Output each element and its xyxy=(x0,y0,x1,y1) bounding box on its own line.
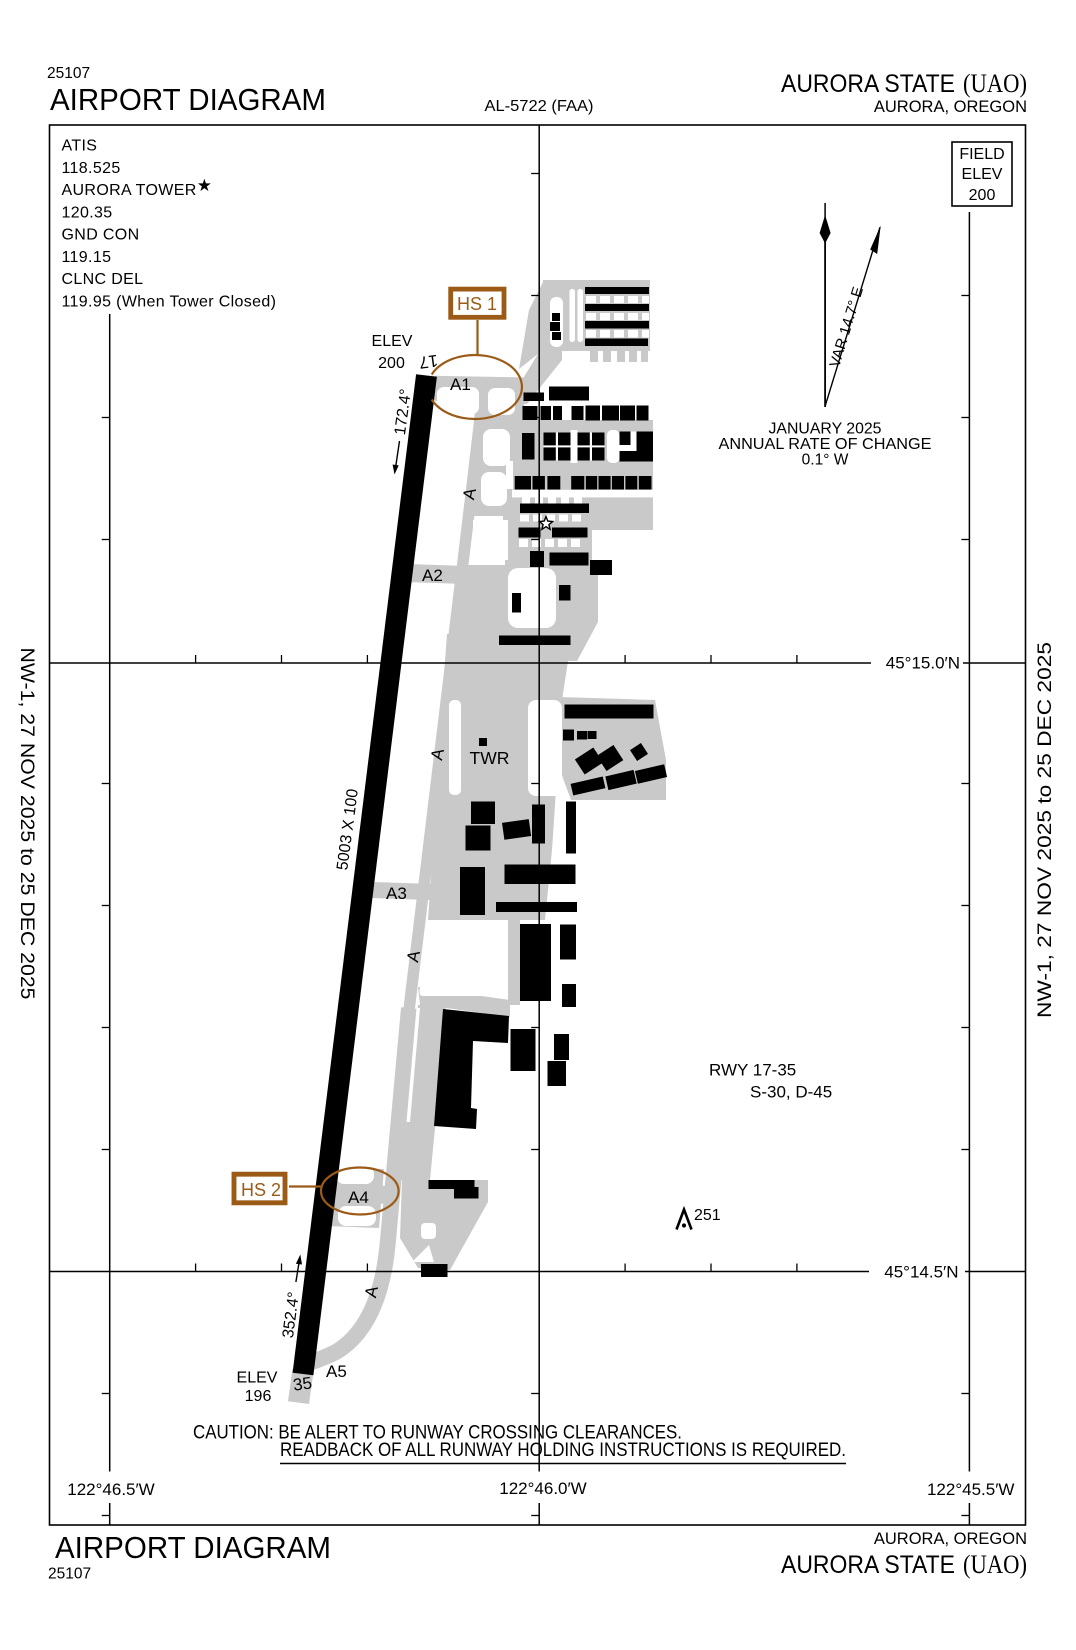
svg-text:25107: 25107 xyxy=(47,65,90,82)
svg-text:NW-1, 27 NOV 2025 to 25 DEC: NW-1, 27 NOV 2025 to 25 DEC 2025 xyxy=(1034,642,1056,1018)
svg-text:READBACK OF ALL RUNWAY HOLDING: READBACK OF ALL RUNWAY HOLDING INSTRUCTI… xyxy=(280,1439,846,1461)
svg-text:RWY 17-35: RWY 17-35 xyxy=(709,1061,796,1080)
svg-text:FIELD: FIELD xyxy=(959,146,1004,163)
svg-text:118.525: 118.525 xyxy=(62,160,121,177)
svg-text:ANNUAL RATE OF CHANGE: ANNUAL RATE OF CHANGE xyxy=(719,436,932,453)
svg-text:GND CON: GND CON xyxy=(62,227,140,244)
svg-text:122°45.5′W: 122°45.5′W xyxy=(927,1480,1014,1499)
svg-text:TWR: TWR xyxy=(470,748,510,768)
svg-text:(UAO): (UAO) xyxy=(963,1550,1027,1579)
svg-text:ATIS: ATIS xyxy=(62,138,98,155)
svg-text:200: 200 xyxy=(969,187,996,204)
svg-text:0.1° W: 0.1° W xyxy=(802,452,849,469)
svg-text:JANUARY 2025: JANUARY 2025 xyxy=(769,421,882,438)
svg-text:251: 251 xyxy=(694,1207,721,1224)
svg-text:AURORA STATE: AURORA STATE xyxy=(781,1551,955,1579)
svg-text:AL-5722 (FAA): AL-5722 (FAA) xyxy=(485,98,594,115)
svg-text:NW-1, 27 NOV 2025 to 25 DEC: NW-1, 27 NOV 2025 to 25 DEC 2025 xyxy=(16,648,38,1000)
svg-text:25107: 25107 xyxy=(48,1566,91,1583)
svg-text:AURORA STATE: AURORA STATE xyxy=(781,70,955,98)
svg-text:AIRPORT DIAGRAM: AIRPORT DIAGRAM xyxy=(50,82,326,117)
svg-text:A5: A5 xyxy=(326,1362,347,1381)
svg-text:119.95 (When Tower Closed): 119.95 (When Tower Closed) xyxy=(62,294,277,311)
svg-text:A2: A2 xyxy=(422,566,443,585)
svg-text:AIRPORT DIAGRAM: AIRPORT DIAGRAM xyxy=(55,1530,331,1565)
svg-text:CLNC DEL: CLNC DEL xyxy=(62,271,144,288)
svg-text:200: 200 xyxy=(378,355,405,372)
svg-text:(UAO): (UAO) xyxy=(963,69,1027,98)
svg-text:HS 1: HS 1 xyxy=(457,294,497,314)
svg-text:45°15.0′N: 45°15.0′N xyxy=(886,654,960,673)
svg-text:122°46.0′W: 122°46.0′W xyxy=(499,1479,586,1498)
svg-text:ELEV: ELEV xyxy=(372,333,413,350)
svg-text:35: 35 xyxy=(292,1373,313,1394)
svg-text:A4: A4 xyxy=(348,1188,369,1207)
svg-text:S-30, D-45: S-30, D-45 xyxy=(750,1083,832,1102)
svg-text:120.35: 120.35 xyxy=(62,205,113,222)
svg-text:119.15: 119.15 xyxy=(62,249,112,266)
svg-text:196: 196 xyxy=(245,1388,272,1405)
svg-text:HS 2: HS 2 xyxy=(241,1180,281,1200)
svg-text:A1: A1 xyxy=(450,375,471,394)
svg-text:ELEV: ELEV xyxy=(962,166,1003,183)
svg-text:AURORA, OREGON: AURORA, OREGON xyxy=(874,98,1027,116)
svg-text:122°46.5′W: 122°46.5′W xyxy=(67,1480,154,1499)
svg-text:ELEV: ELEV xyxy=(237,1370,278,1387)
svg-text:45°14.5′N: 45°14.5′N xyxy=(884,1263,958,1282)
svg-text:AURORA, OREGON: AURORA, OREGON xyxy=(874,1530,1027,1548)
svg-text:A3: A3 xyxy=(386,884,407,903)
